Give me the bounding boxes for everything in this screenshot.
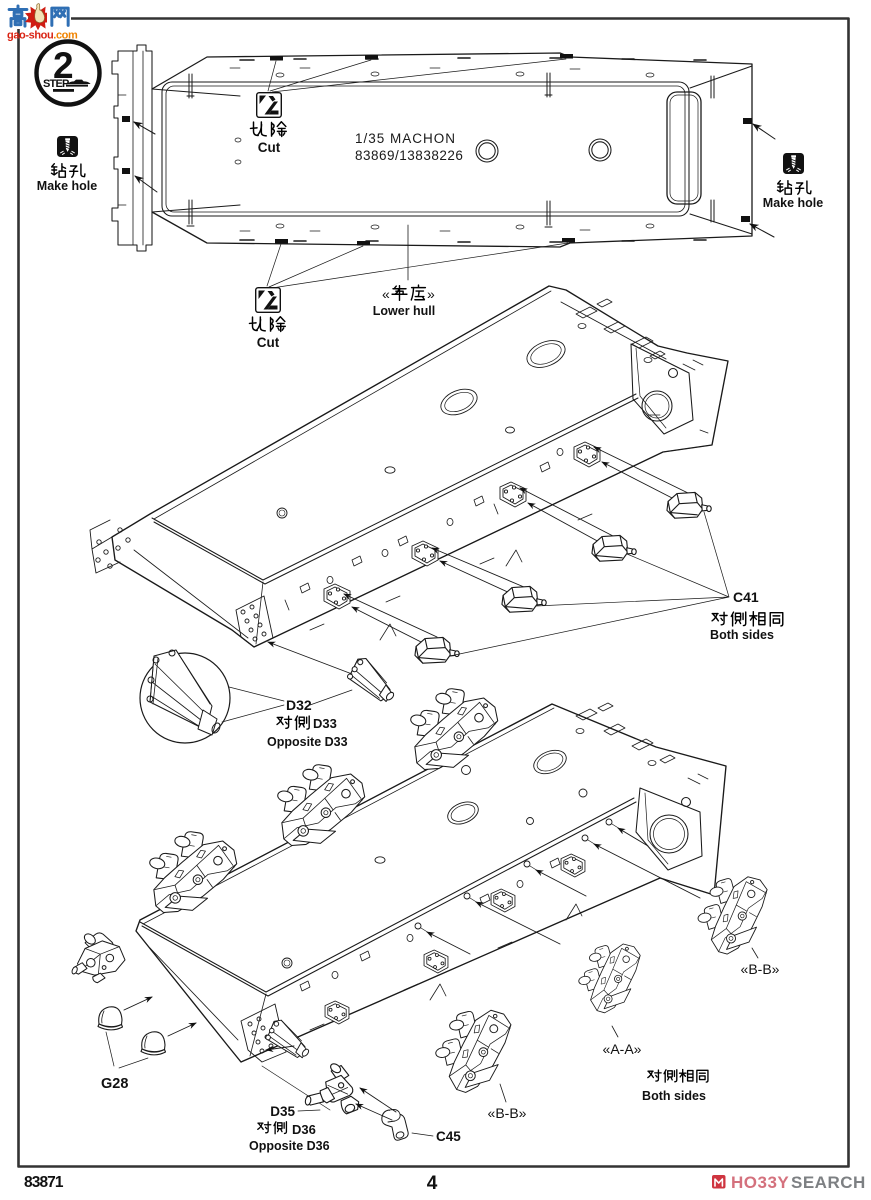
svg-text:83871: 83871 [24, 1174, 64, 1191]
svg-text:Make hole: Make hole [763, 196, 823, 210]
svg-text:HO33Y: HO33Y [731, 1173, 789, 1192]
svg-text:»: » [427, 286, 435, 302]
svg-text:STEP: STEP [43, 78, 69, 90]
svg-text:SEARCH: SEARCH [791, 1173, 866, 1192]
svg-text:G28: G28 [101, 1076, 128, 1092]
svg-text:Lower hull: Lower hull [373, 304, 436, 318]
svg-text:Cut: Cut [258, 140, 281, 155]
svg-text:83869/13838226: 83869/13838226 [355, 148, 463, 163]
svg-text:4: 4 [427, 1173, 438, 1194]
svg-text:Opposite D36: Opposite D36 [249, 1139, 330, 1153]
svg-text:Cut: Cut [257, 335, 280, 350]
svg-text:«B-B»: «B-B» [488, 1105, 527, 1121]
svg-text:D36: D36 [292, 1122, 316, 1137]
svg-text:Opposite D33: Opposite D33 [267, 735, 348, 749]
svg-text:1/35 MACHON: 1/35 MACHON [355, 131, 456, 146]
svg-text:C41: C41 [733, 589, 759, 605]
svg-text:«: « [382, 286, 390, 302]
svg-text:C45: C45 [436, 1129, 461, 1144]
svg-text:Both sides: Both sides [710, 628, 774, 642]
svg-text:Both sides: Both sides [642, 1089, 706, 1103]
svg-text:D35: D35 [270, 1104, 295, 1119]
svg-text:Make hole: Make hole [37, 179, 97, 193]
svg-text:D32: D32 [286, 697, 312, 713]
svg-text:«B-B»: «B-B» [741, 961, 780, 977]
svg-text:«A-A»: «A-A» [603, 1041, 642, 1057]
svg-text:D33: D33 [313, 716, 337, 731]
